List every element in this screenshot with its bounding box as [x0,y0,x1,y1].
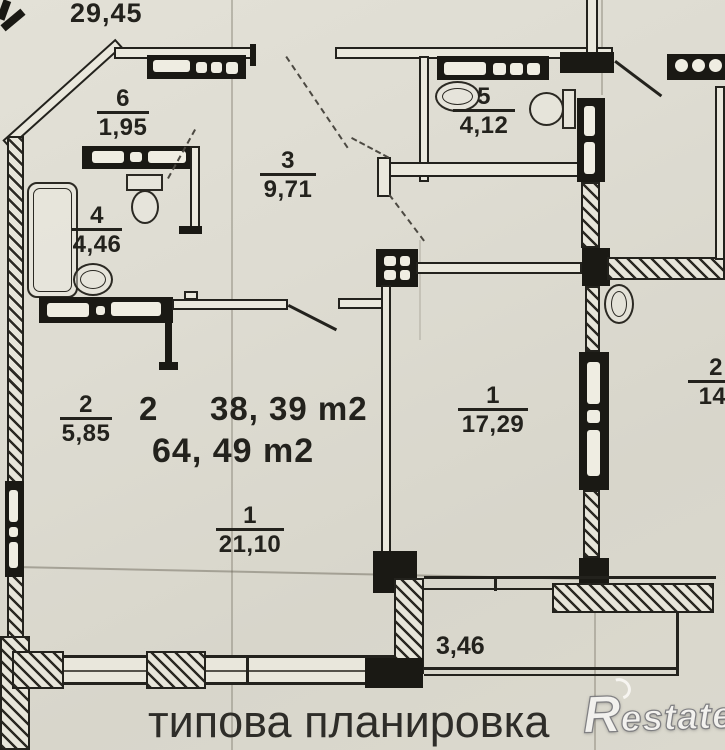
kitchen-partition [165,297,172,370]
room-label-hall: 6 1,95 [97,86,149,141]
balcony-door-line [424,588,554,590]
column-slot [584,142,595,174]
room-label-bedroom: 1 17,29 [458,383,528,438]
cabinet-slot [527,63,540,75]
room-label-neighbor: 2 14, [688,355,725,410]
wardrobe-slot [196,62,207,73]
room-label-bathroom: 4 4,46 [72,203,122,258]
room-number: 2 [709,355,723,380]
room-area: 9,71 [264,177,313,203]
room-area: 21,10 [219,532,282,558]
room-number: 2 [79,392,93,417]
summary-rooms-count: 2 [139,390,158,428]
room-label-living: 1 21,10 [216,503,284,558]
paper-crease [231,0,233,750]
neighbor-top-area-label: 29,45 [70,0,143,29]
window-slot [9,542,18,568]
room-area: 1,95 [99,115,148,141]
cabinet-slot [493,63,506,75]
wall-corner-block [365,658,423,688]
column-slot [587,430,600,476]
column-slot [584,106,595,136]
wall-notch [184,291,198,300]
column-slot [587,362,600,404]
corridor-wall [338,298,384,309]
column-slot [400,270,410,280]
wall-cap [560,52,614,73]
cabinet-slot [92,151,124,163]
balcony-parapet [424,674,679,676]
column-slot [384,256,396,266]
room-area: 14, [699,384,725,410]
wall-cap [159,362,178,370]
corridor-wall [172,299,288,310]
room-area: 4,12 [460,113,509,139]
summary-living-area: 38, 39 m2 [210,390,368,428]
wc-bottom-wall [384,162,580,177]
shaft-hatch-wall [583,490,600,558]
room-area: 4,46 [73,232,122,258]
partition-wall [381,285,391,555]
column-slot [587,410,600,423]
counter-slot [709,59,722,72]
shaft-hatch-wall [585,286,600,352]
balcony-wall-line [424,576,716,579]
column-slot [400,256,410,266]
room-number: 1 [486,383,500,408]
cabinet-slot [444,62,486,75]
room-number: 1 [243,503,257,528]
room-label-kitchen: 2 5,85 [60,392,112,447]
balcony-area-label: 3,46 [436,632,485,661]
summary-total-area: 64, 49 m2 [152,432,314,471]
window-pier [146,651,206,689]
neighbor-hatch-wall [607,257,725,280]
sink-icon [73,263,113,296]
paper-crease [419,240,421,340]
plan-caption: типова планировка [148,696,549,748]
wall-cap [250,44,256,66]
wardrobe-slot [226,62,238,74]
toilet-tank-icon [126,174,163,191]
room-label-wc: 5 4,12 [453,84,515,139]
window-slot [9,527,18,537]
toilet-bowl-icon [529,92,564,126]
toilet-bowl-icon [131,190,159,224]
wall-cap [179,226,202,234]
shaft-hatch-wall [581,182,600,248]
wardrobe-slot [211,62,222,73]
window-slot [9,490,18,522]
window [64,655,146,685]
left-exterior-wall [7,136,24,660]
balcony-hatch-wall [552,583,714,613]
counter-slot [675,59,688,72]
room-area: 5,85 [62,421,111,447]
window-pier [12,651,64,689]
room-number: 6 [116,86,130,111]
toilet-tank-icon [562,89,576,129]
shaft-column [582,248,610,286]
stairwell-wall [586,0,598,54]
sink-icon [604,284,634,324]
right-edge-wall [715,86,725,260]
room-label-corridor: 3 9,71 [260,148,316,203]
room-number: 3 [281,148,295,173]
bedroom-door-swing [388,194,425,242]
floor-plan-scan: 6 1,95 4 4,46 3 9,71 5 4,12 2 5,85 1 21,… [0,0,725,750]
cabinet-slot [510,63,523,75]
room-area: 17,29 [462,412,525,438]
wall-cap [377,157,391,197]
balcony-parapet [424,667,679,670]
column-slot [384,270,396,280]
cabinet-slot [130,152,142,162]
room-number: 4 [90,203,104,228]
bathroom-right-wall [190,146,200,234]
wc-door-swing [351,137,389,158]
watermark: Restate [582,680,725,745]
living-door-leaf [288,304,337,331]
shaft-column [376,249,418,287]
balcony-right-parapet [676,612,679,674]
wardrobe-slot [153,60,190,72]
counter-slot [692,59,705,72]
neighbor-door-leaf [614,60,662,97]
counter-slot [111,302,161,316]
room-number: 5 [477,84,491,109]
entrance-door-swing [285,56,348,148]
watermark-text: estate [620,694,725,739]
balcony-door-jamb [494,578,497,591]
counter-slot [47,303,89,317]
bedroom-top-wall [416,262,582,274]
window-mullion [246,655,249,685]
bathtub-icon [27,182,78,298]
counter-slot [96,306,105,315]
